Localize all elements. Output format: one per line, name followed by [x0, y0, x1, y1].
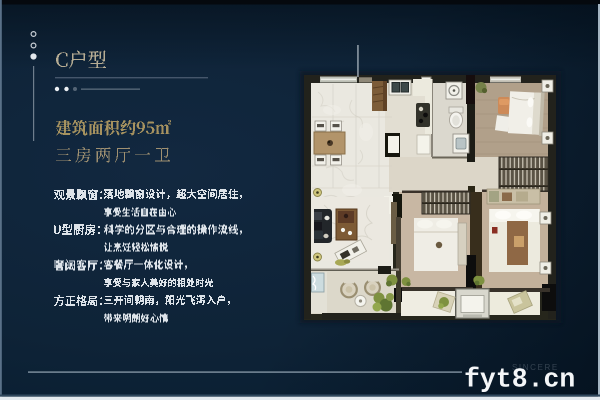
svg-text:fyt8.cn: fyt8.cn — [464, 364, 575, 394]
